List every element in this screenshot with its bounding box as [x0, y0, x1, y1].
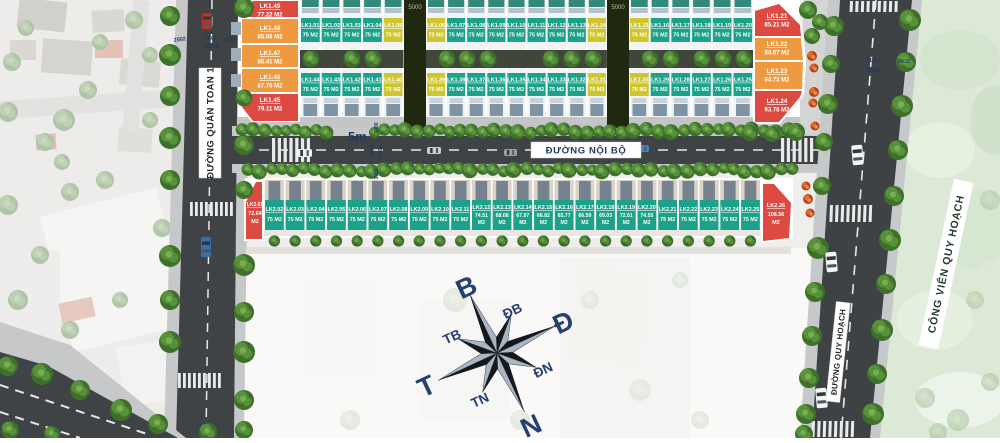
svg-text:75 M2: 75 M2 [652, 87, 667, 93]
svg-text:LK1.17: LK1.17 [672, 23, 690, 29]
svg-text:LK2.11: LK2.11 [452, 207, 469, 213]
svg-text:5000: 5000 [611, 5, 625, 11]
svg-text:LK2.24: LK2.24 [721, 207, 739, 213]
svg-text:LK1.27: LK1.27 [692, 78, 710, 84]
svg-text:LK1.05: LK1.05 [384, 23, 402, 29]
svg-text:LK2.06: LK2.06 [348, 207, 366, 213]
svg-text:75 M2: 75 M2 [288, 217, 303, 223]
svg-text:LK1.49: LK1.49 [260, 3, 281, 10]
svg-text:M2: M2 [478, 220, 485, 226]
svg-text:108.56: 108.56 [768, 212, 785, 218]
svg-text:LK1.10: LK1.10 [507, 23, 525, 29]
svg-text:LK1.46: LK1.46 [260, 74, 281, 81]
svg-text:LK1.15: LK1.15 [630, 23, 648, 29]
svg-text:LK2.08: LK2.08 [390, 207, 408, 213]
svg-text:LK1.04: LK1.04 [363, 23, 382, 29]
svg-text:LK2.21: LK2.21 [659, 207, 677, 213]
svg-text:75 M2: 75 M2 [714, 33, 729, 39]
svg-text:75 M2: 75 M2 [632, 87, 647, 93]
svg-text:LK2.18: LK2.18 [597, 205, 615, 211]
svg-text:LK1.03: LK1.03 [343, 23, 361, 29]
svg-text:74.55: 74.55 [640, 213, 653, 219]
svg-text:LK1.37: LK1.37 [467, 78, 485, 84]
svg-text:75 M2: 75 M2 [267, 217, 282, 223]
svg-text:LK1.28: LK1.28 [672, 78, 690, 84]
svg-text:M2: M2 [519, 220, 526, 226]
svg-text:68.08: 68.08 [496, 213, 509, 219]
svg-text:LK1.31: LK1.31 [588, 78, 606, 84]
svg-text:75 M2: 75 M2 [428, 87, 443, 93]
svg-text:75 M2: 75 M2 [509, 87, 524, 93]
svg-text:75 M2: 75 M2 [386, 87, 401, 93]
svg-text:9000: 9000 [370, 144, 376, 155]
svg-text:75 M2: 75 M2 [344, 87, 359, 93]
svg-text:75 M2: 75 M2 [632, 33, 647, 39]
svg-text:75 M2: 75 M2 [391, 217, 406, 223]
svg-text:LK2.26: LK2.26 [767, 203, 785, 209]
svg-text:LK1.42: LK1.42 [343, 78, 361, 84]
svg-text:75 M2: 75 M2 [449, 33, 464, 39]
svg-text:LK1.25: LK1.25 [734, 78, 752, 84]
svg-text:75 M2: 75 M2 [489, 33, 504, 39]
svg-text:5000: 5000 [408, 5, 422, 11]
svg-text:LK2.05: LK2.05 [328, 207, 346, 213]
svg-text:M2: M2 [643, 220, 650, 226]
svg-text:5m: 5m [348, 129, 367, 144]
svg-text:LK2.10: LK2.10 [431, 207, 449, 213]
svg-text:LK1.18: LK1.18 [692, 23, 710, 29]
svg-text:75 M2: 75 M2 [529, 87, 544, 93]
svg-text:75 M2: 75 M2 [702, 217, 717, 223]
svg-text:75 M2: 75 M2 [569, 33, 584, 39]
svg-text:LK1.32: LK1.32 [568, 78, 586, 84]
svg-text:93.78 M2: 93.78 M2 [764, 108, 790, 114]
svg-text:LK1.38: LK1.38 [447, 78, 465, 84]
svg-text:LK1.47: LK1.47 [260, 50, 281, 57]
svg-text:75 M2: 75 M2 [509, 33, 524, 39]
svg-text:15000: 15000 [378, 145, 384, 159]
svg-text:75 M2: 75 M2 [673, 87, 688, 93]
svg-text:LK1.01: LK1.01 [301, 23, 319, 29]
svg-text:LK2.23: LK2.23 [700, 207, 718, 213]
svg-text:75 M2: 75 M2 [660, 217, 675, 223]
svg-text:LK1.41: LK1.41 [363, 78, 381, 84]
svg-text:M2: M2 [560, 220, 567, 226]
svg-text:75 M2: 75 M2 [469, 33, 484, 39]
svg-text:75 M2: 75 M2 [469, 87, 484, 93]
svg-text:M2: M2 [623, 220, 630, 226]
svg-text:75 M2: 75 M2 [303, 87, 318, 93]
svg-text:LK1.21: LK1.21 [767, 13, 788, 20]
svg-text:75 M2: 75 M2 [714, 87, 729, 93]
svg-text:75 M2: 75 M2 [529, 33, 544, 39]
svg-text:LK1.34: LK1.34 [527, 78, 546, 84]
svg-text:LK1.29: LK1.29 [651, 78, 669, 84]
svg-text:LK1.45: LK1.45 [260, 97, 281, 104]
svg-text:66.59: 66.59 [578, 213, 591, 219]
svg-text:M2: M2 [772, 220, 780, 226]
svg-text:75 M2: 75 M2 [323, 87, 338, 93]
svg-text:LK1.09: LK1.09 [487, 23, 505, 29]
svg-text:75 M2: 75 M2 [569, 87, 584, 93]
svg-text:LK2.03: LK2.03 [286, 207, 304, 213]
svg-text:3000: 3000 [374, 122, 380, 133]
svg-text:75 M2: 75 M2 [681, 217, 696, 223]
svg-text:LK1.02: LK1.02 [322, 23, 340, 29]
svg-text:85.06 M2: 85.06 M2 [257, 35, 283, 41]
svg-text:75 M2: 75 M2 [673, 33, 688, 39]
svg-text:LK2.22: LK2.22 [680, 207, 698, 213]
svg-text:M2: M2 [540, 220, 547, 226]
svg-text:94.73 M2: 94.73 M2 [764, 78, 790, 84]
svg-text:M2: M2 [581, 220, 588, 226]
svg-text:LK1.08: LK1.08 [467, 23, 485, 29]
svg-text:26253: 26253 [865, 68, 880, 74]
svg-text:75 M2: 75 M2 [386, 33, 401, 39]
svg-text:75 M2: 75 M2 [589, 33, 604, 39]
svg-text:LK2.01: LK2.01 [247, 202, 264, 208]
svg-text:LK1.07: LK1.07 [447, 23, 465, 29]
svg-text:M2: M2 [251, 219, 259, 225]
svg-text:75 M2: 75 M2 [370, 217, 385, 223]
svg-text:75 M2: 75 M2 [453, 217, 468, 223]
svg-text:66.82: 66.82 [537, 213, 550, 219]
svg-text:3000: 3000 [374, 168, 380, 179]
svg-text:75 M2: 75 M2 [449, 87, 464, 93]
svg-text:LK1.06: LK1.06 [427, 23, 445, 29]
svg-text:LK1.19: LK1.19 [713, 23, 731, 29]
svg-text:LK2.16: LK2.16 [555, 205, 573, 211]
svg-text:75 M2: 75 M2 [694, 87, 709, 93]
svg-text:LK2.02: LK2.02 [266, 207, 284, 213]
svg-text:75 M2: 75 M2 [329, 217, 344, 223]
svg-text:LK1.30: LK1.30 [630, 78, 648, 84]
svg-text:ĐƯỜNG QUÂN TOAN 1: ĐƯỜNG QUÂN TOAN 1 [205, 67, 217, 179]
svg-text:3402: 3402 [897, 59, 909, 65]
svg-text:7500: 7500 [205, 36, 217, 42]
svg-text:75 M2: 75 M2 [365, 33, 380, 39]
svg-text:LK1.39: LK1.39 [427, 78, 445, 84]
svg-text:75 M2: 75 M2 [344, 33, 359, 39]
svg-text:LK1.23: LK1.23 [767, 68, 788, 75]
svg-text:84.67 M2: 84.67 M2 [764, 51, 790, 57]
svg-text:LK2.07: LK2.07 [369, 207, 387, 213]
svg-text:LK1.12: LK1.12 [548, 23, 566, 29]
svg-text:LK2.09: LK2.09 [410, 207, 428, 213]
svg-text:LK2.25: LK2.25 [742, 207, 760, 213]
svg-text:LK1.35: LK1.35 [507, 78, 525, 84]
svg-text:LK1.40: LK1.40 [384, 78, 402, 84]
svg-text:LK2.13: LK2.13 [493, 205, 511, 211]
svg-text:11250: 11250 [867, 58, 882, 64]
svg-text:75 M2: 75 M2 [549, 87, 564, 93]
svg-text:75 M2: 75 M2 [735, 33, 750, 39]
svg-text:LK1.24: LK1.24 [767, 98, 788, 105]
svg-text:77.22 M2: 77.22 M2 [257, 13, 283, 19]
svg-text:LK1.36: LK1.36 [487, 78, 505, 84]
svg-text:LK2.17: LK2.17 [576, 205, 594, 211]
svg-text:LK2.04: LK2.04 [307, 207, 325, 213]
svg-text:LK2.15: LK2.15 [535, 205, 553, 211]
svg-text:LK2.19: LK2.19 [617, 205, 635, 211]
svg-text:75 M2: 75 M2 [652, 33, 667, 39]
svg-text:75 M2: 75 M2 [350, 217, 365, 223]
svg-text:LK1.43: LK1.43 [322, 78, 340, 84]
svg-text:75 M2: 75 M2 [308, 217, 323, 223]
svg-text:LK1.14: LK1.14 [588, 23, 607, 29]
svg-text:85.21 M2: 85.21 M2 [764, 23, 790, 29]
svg-text:86.41 M2: 86.41 M2 [257, 60, 283, 66]
svg-text:69.03: 69.03 [599, 213, 612, 219]
svg-text:75 M2: 75 M2 [722, 217, 737, 223]
svg-text:75 M2: 75 M2 [694, 33, 709, 39]
svg-text:LK1.48: LK1.48 [260, 25, 281, 32]
svg-text:75 M2: 75 M2 [303, 33, 318, 39]
svg-text:75 M2: 75 M2 [549, 33, 564, 39]
svg-text:72.01: 72.01 [620, 213, 633, 219]
svg-text:LK1.33: LK1.33 [548, 78, 566, 84]
svg-text:M2: M2 [498, 220, 505, 226]
svg-text:LK1.20: LK1.20 [734, 23, 752, 29]
svg-text:75 M2: 75 M2 [323, 33, 338, 39]
svg-text:65.77: 65.77 [558, 213, 571, 219]
svg-text:LK1.22: LK1.22 [767, 41, 788, 48]
svg-text:LK2.12: LK2.12 [473, 205, 491, 211]
svg-text:LK1.11: LK1.11 [528, 23, 546, 29]
svg-text:75 M2: 75 M2 [412, 217, 427, 223]
svg-text:87.76 M2: 87.76 M2 [257, 84, 283, 90]
svg-text:LK1.16: LK1.16 [651, 23, 669, 29]
svg-text:75 M2: 75 M2 [589, 87, 604, 93]
svg-text:75 M2: 75 M2 [428, 33, 443, 39]
svg-text:75 M2: 75 M2 [433, 217, 448, 223]
svg-text:LK1.44: LK1.44 [301, 78, 320, 84]
svg-text:75 M2: 75 M2 [743, 217, 758, 223]
svg-text:67.97: 67.97 [516, 213, 529, 219]
svg-text:LK2.20: LK2.20 [638, 205, 656, 211]
svg-text:75 M2: 75 M2 [365, 87, 380, 93]
svg-text:74.51: 74.51 [475, 213, 488, 219]
svg-text:72.64: 72.64 [248, 211, 262, 217]
svg-text:LK2.14: LK2.14 [514, 205, 532, 211]
svg-text:LK1.13: LK1.13 [568, 23, 586, 29]
svg-text:75 M2: 75 M2 [735, 87, 750, 93]
svg-text:79.11 M2: 79.11 M2 [258, 107, 283, 113]
svg-text:M2: M2 [602, 220, 609, 226]
svg-text:12500: 12500 [203, 44, 218, 50]
svg-text:ĐƯỜNG NỘI BỘ: ĐƯỜNG NỘI BỘ [546, 145, 627, 157]
svg-text:75 M2: 75 M2 [489, 87, 504, 93]
svg-text:LK1.26: LK1.26 [713, 78, 731, 84]
